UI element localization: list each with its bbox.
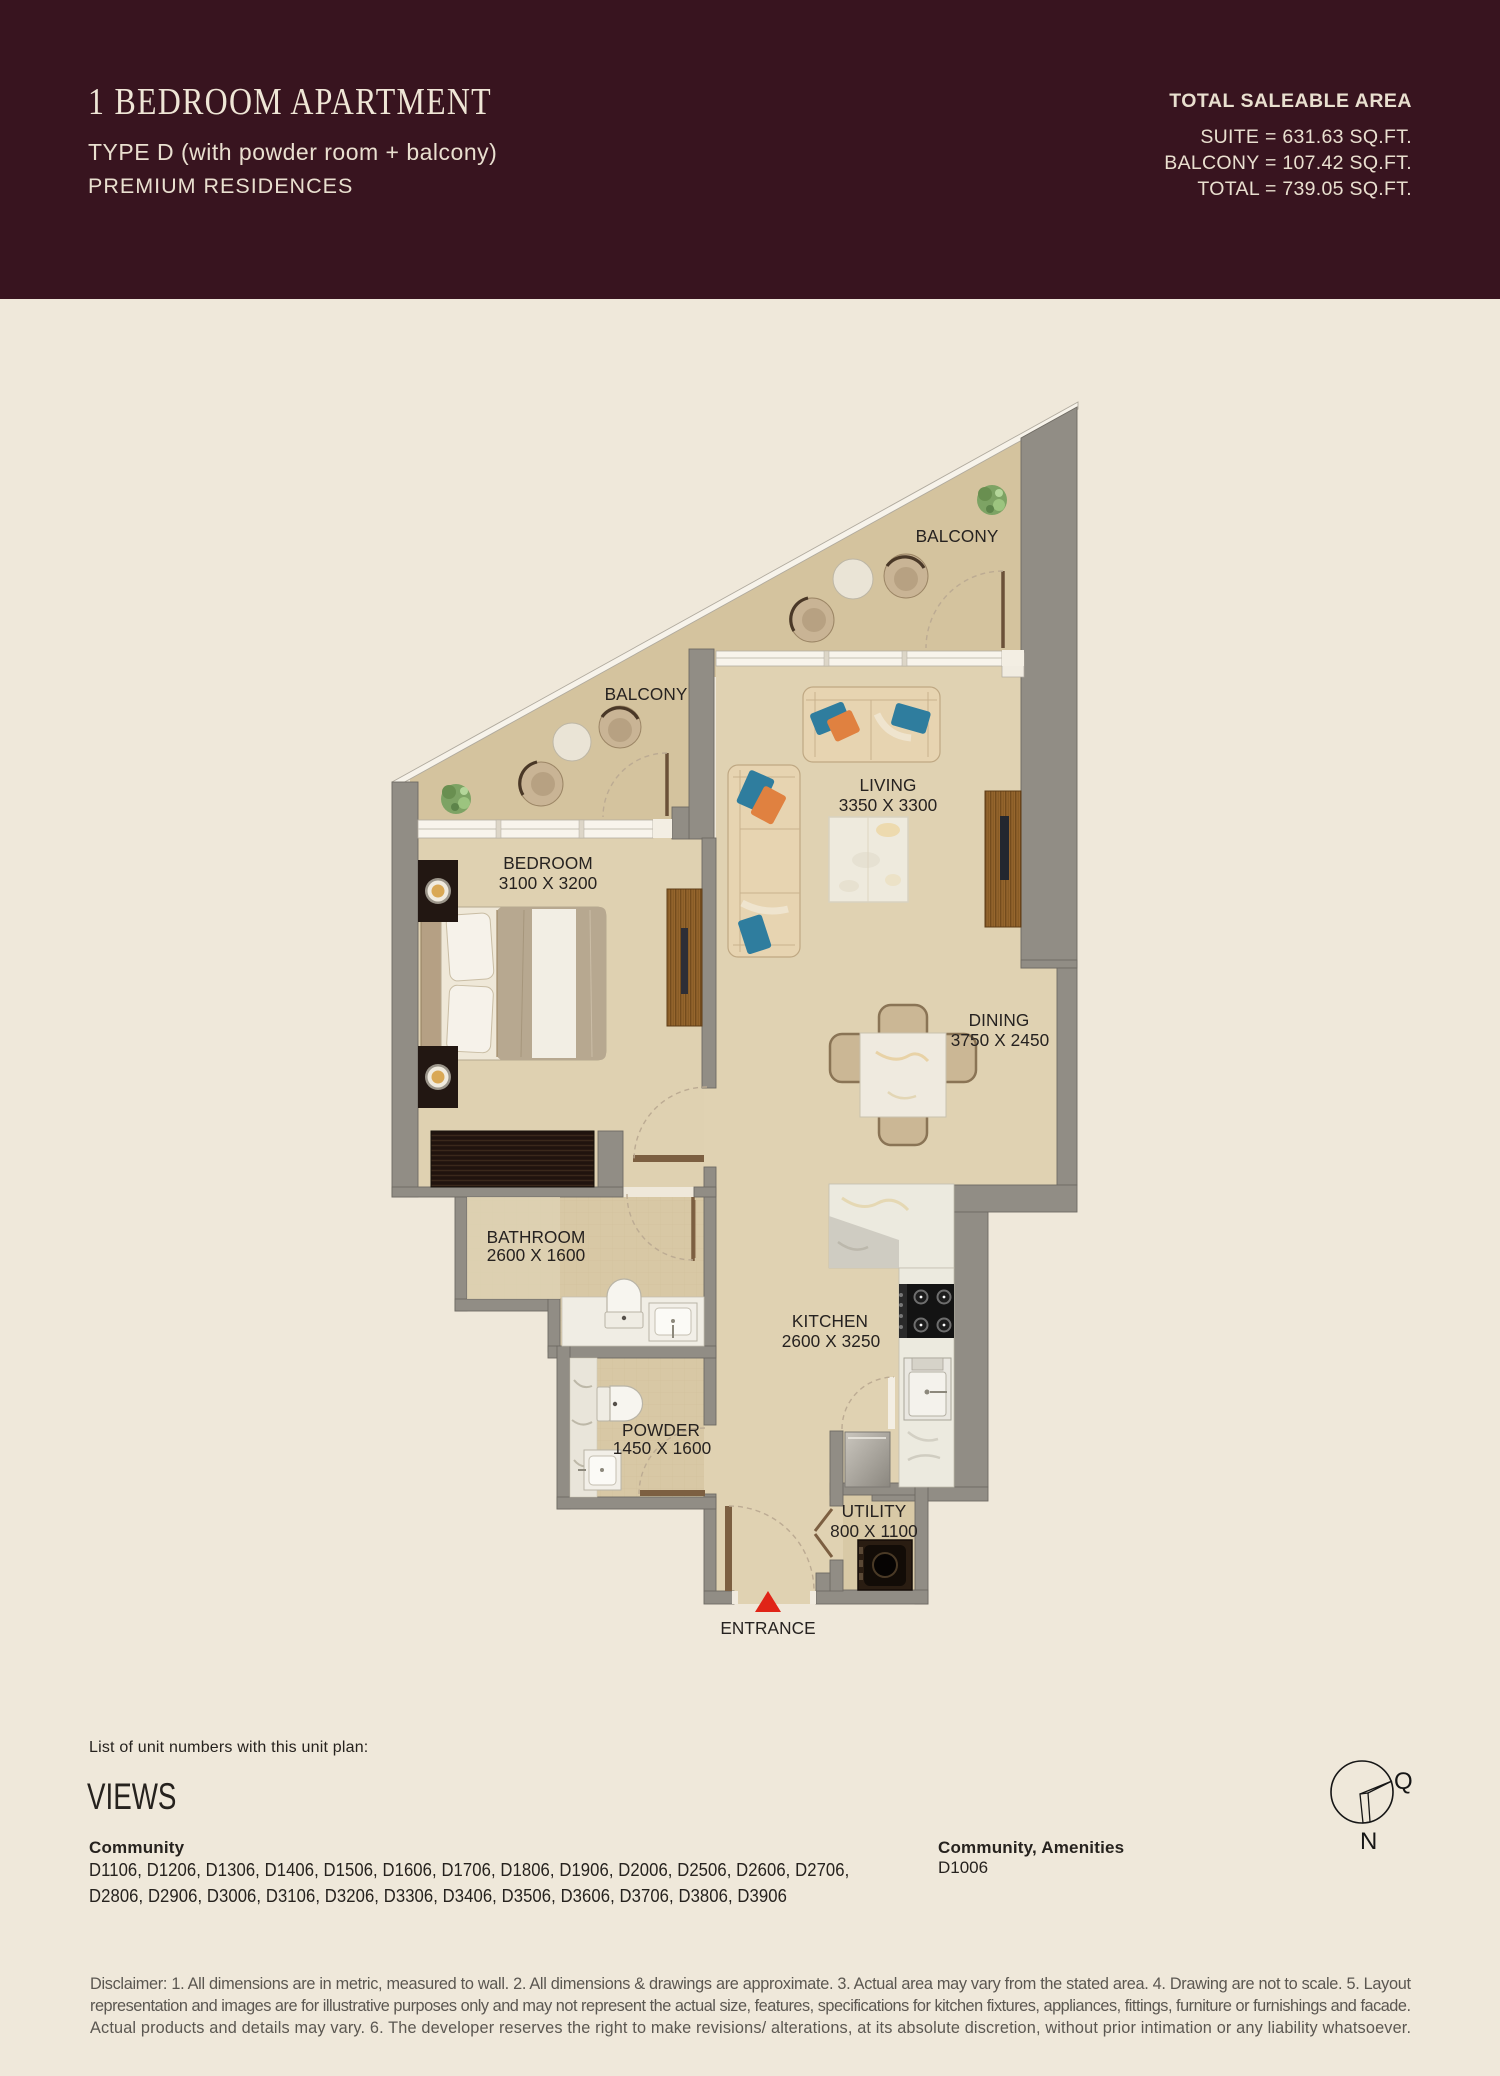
svg-text:DINING: DINING bbox=[969, 1010, 1030, 1030]
svg-text:POWDER: POWDER bbox=[622, 1420, 700, 1440]
svg-text:BALCONY: BALCONY bbox=[916, 526, 999, 546]
svg-text:3100 X 3200: 3100 X 3200 bbox=[499, 873, 598, 893]
svg-text:Q: Q bbox=[1394, 1768, 1413, 1795]
svg-text:BALCONY: BALCONY bbox=[605, 684, 688, 704]
svg-text:3350 X 3300: 3350 X 3300 bbox=[839, 795, 938, 815]
svg-text:2600 X 1600: 2600 X 1600 bbox=[487, 1245, 586, 1265]
svg-text:LIVING: LIVING bbox=[860, 775, 917, 795]
svg-text:2600 X 3250: 2600 X 3250 bbox=[782, 1331, 881, 1351]
svg-text:N: N bbox=[1360, 1828, 1377, 1855]
svg-text:800 X 1100: 800 X 1100 bbox=[830, 1521, 918, 1541]
svg-text:BATHROOM: BATHROOM bbox=[487, 1227, 586, 1247]
svg-text:KITCHEN: KITCHEN bbox=[792, 1311, 868, 1331]
svg-text:3750 X 2450: 3750 X 2450 bbox=[951, 1030, 1050, 1050]
svg-text:BEDROOM: BEDROOM bbox=[503, 853, 593, 873]
svg-text:UTILITY: UTILITY bbox=[842, 1501, 907, 1521]
svg-text:1450 X 1600: 1450 X 1600 bbox=[613, 1438, 712, 1458]
svg-text:ENTRANCE: ENTRANCE bbox=[720, 1618, 815, 1638]
